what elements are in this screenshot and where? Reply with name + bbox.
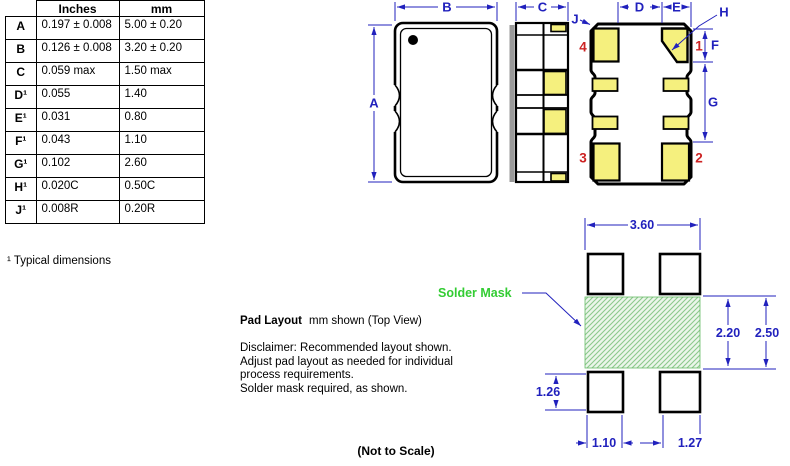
side-castellation-pad <box>593 79 618 92</box>
inches-value: 0.102 <box>36 155 119 178</box>
inches-value: 0.059 max <box>36 63 119 86</box>
package-views-drawing: B A C <box>355 0 790 200</box>
pin1-marker-dot <box>408 35 418 45</box>
pad-layout-heading: Pad Layoutmm shown (Top View) <box>240 315 422 327</box>
mm-value: 0.20R <box>119 201 204 224</box>
table-footnote: ¹ Typical dimensions <box>7 255 111 267</box>
solder-mask-label: Solder Mask <box>438 286 512 300</box>
side-pad <box>551 174 566 182</box>
layout-pad-bottom-right <box>660 372 700 412</box>
dim-label-C: C <box>538 0 548 15</box>
inches-value: 0.020C <box>36 178 119 201</box>
dim-label-J: J <box>571 12 578 27</box>
dim-1.10: 1.10 <box>592 436 616 450</box>
col-header-mm: mm <box>119 1 204 17</box>
table-row: G¹ 0.102 2.60 <box>6 155 205 178</box>
dim-label-B: B <box>442 0 451 15</box>
row-label: H¹ <box>6 178 37 201</box>
top-view: B A <box>368 0 497 182</box>
dim-label-H: H <box>719 5 728 20</box>
dimension-table: Inches mm A 0.197 ± 0.008 5.00 ± 0.20 B … <box>5 0 205 224</box>
row-label: C <box>6 63 37 86</box>
table-row: F¹ 0.043 1.10 <box>6 132 205 155</box>
row-label: G¹ <box>6 155 37 178</box>
pad-layout-title: Pad Layout <box>240 315 302 327</box>
table-row: B 0.126 ± 0.008 3.20 ± 0.20 <box>6 40 205 63</box>
table-row: D¹ 0.055 1.40 <box>6 86 205 109</box>
row-label: F¹ <box>6 132 37 155</box>
mm-value: 0.80 <box>119 109 204 132</box>
dim-label-A: A <box>369 96 379 111</box>
layout-pad-bottom-left <box>588 372 623 412</box>
mm-value: 1.40 <box>119 86 204 109</box>
inches-value: 0.197 ± 0.008 <box>36 17 119 40</box>
not-to-scale-note: (Not to Scale) <box>316 444 476 458</box>
table-row: A 0.197 ± 0.008 5.00 ± 0.20 <box>6 17 205 40</box>
side-view: C <box>510 0 569 182</box>
dim-2.20: 2.20 <box>716 326 740 340</box>
datasheet-page: Inches mm A 0.197 ± 0.008 5.00 ± 0.20 B … <box>0 0 790 466</box>
layout-pad-top-right <box>660 254 700 294</box>
pad-layout-drawing: 3.60 2.20 2.50 1.26 1.10 1.27 <box>520 205 790 466</box>
dim-label-D: D <box>635 0 644 15</box>
dim-1.26: 1.26 <box>536 385 560 399</box>
side-castellation-pad <box>664 117 689 130</box>
row-label: A <box>6 17 37 40</box>
dim-3.60: 3.60 <box>630 218 654 232</box>
inches-value: 0.055 <box>36 86 119 109</box>
solder-mask-leader <box>522 293 581 326</box>
disclaimer-line: Adjust pad layout as needed for individu… <box>240 356 453 370</box>
mm-value: 5.00 ± 0.20 <box>119 17 204 40</box>
pin-number-3: 3 <box>579 151 587 166</box>
side-castellation-pad <box>664 79 689 92</box>
inches-value: 0.031 <box>36 109 119 132</box>
mm-value: 0.50C <box>119 178 204 201</box>
disclaimer-line: process requirements. <box>240 369 453 383</box>
dim-label-F: F <box>711 38 719 53</box>
layout-pad-top-left <box>588 254 623 294</box>
mm-value: 2.60 <box>119 155 204 178</box>
pin-number-4: 4 <box>579 40 587 55</box>
table-row: C 0.059 max 1.50 max <box>6 63 205 86</box>
side-pad <box>544 72 566 95</box>
table-blank-cell <box>6 1 37 17</box>
table-row: J¹ 0.008R 0.20R <box>6 201 205 224</box>
row-label: D¹ <box>6 86 37 109</box>
package-body-outline <box>395 23 497 182</box>
row-label: B <box>6 40 37 63</box>
side-pad <box>551 25 566 32</box>
dim-2.50: 2.50 <box>755 326 779 340</box>
mm-value: 1.50 max <box>119 63 204 86</box>
pad-layout-subtitle: mm shown (Top View) <box>309 315 422 327</box>
disclaimer-line: Solder mask required, as shown. <box>240 383 453 397</box>
col-header-inches: Inches <box>36 1 119 17</box>
dim-label-E: E <box>672 0 681 15</box>
pad-4 <box>594 29 619 62</box>
side-shadow <box>510 25 515 182</box>
inches-value: 0.008R <box>36 201 119 224</box>
pad-2 <box>662 144 689 181</box>
table-row: H¹ 0.020C 0.50C <box>6 178 205 201</box>
side-body-outline <box>516 23 568 182</box>
disclaimer-block: Disclaimer: Recommended layout shown. Ad… <box>240 342 453 396</box>
row-label: E¹ <box>6 109 37 132</box>
pin-number-1: 1 <box>695 39 703 54</box>
pin-number-2: 2 <box>695 151 703 166</box>
mm-value: 3.20 ± 0.20 <box>119 40 204 63</box>
inches-value: 0.043 <box>36 132 119 155</box>
table-row: E¹ 0.031 0.80 <box>6 109 205 132</box>
side-castellation-pad <box>593 117 618 130</box>
bottom-view: 4 1 3 2 D E H J F G <box>571 0 728 184</box>
row-label: J¹ <box>6 201 37 224</box>
disclaimer-line: Disclaimer: Recommended layout shown. <box>240 342 453 356</box>
dim-label-G: G <box>708 95 718 110</box>
solder-mask-area <box>585 297 700 368</box>
dim-1.27: 1.27 <box>678 436 702 450</box>
inches-value: 0.126 ± 0.008 <box>36 40 119 63</box>
mm-value: 1.10 <box>119 132 204 155</box>
side-pad <box>544 110 566 134</box>
pad-3 <box>594 144 620 181</box>
table-header-row: Inches mm <box>6 1 205 17</box>
